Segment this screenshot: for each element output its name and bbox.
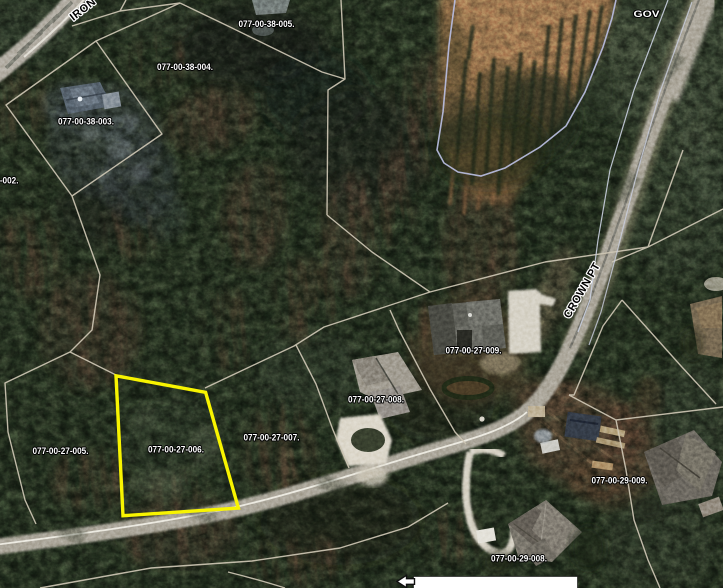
svg-text:077-00-27-006.: 077-00-27-006. — [148, 445, 204, 456]
svg-text:077-00-27-009.: 077-00-27-009. — [446, 346, 502, 357]
svg-text:077-00-27-008.: 077-00-27-008. — [348, 395, 404, 406]
svg-text:077-00-29-008.: 077-00-29-008. — [491, 554, 547, 565]
svg-text:077-00-38-004.: 077-00-38-004. — [157, 62, 213, 73]
svg-text:077-00-29-009.: 077-00-29-009. — [592, 476, 648, 487]
svg-text:077-00-38-002.: 077-00-38-002. — [0, 176, 19, 187]
svg-text:GOV: GOV — [634, 9, 661, 20]
svg-text:077-00-38-003.: 077-00-38-003. — [58, 117, 114, 128]
svg-text:077-00-38-005.: 077-00-38-005. — [239, 19, 295, 30]
svg-text:077-00-27-007.: 077-00-27-007. — [244, 433, 300, 444]
svg-text:077-00-27-005.: 077-00-27-005. — [33, 446, 89, 457]
